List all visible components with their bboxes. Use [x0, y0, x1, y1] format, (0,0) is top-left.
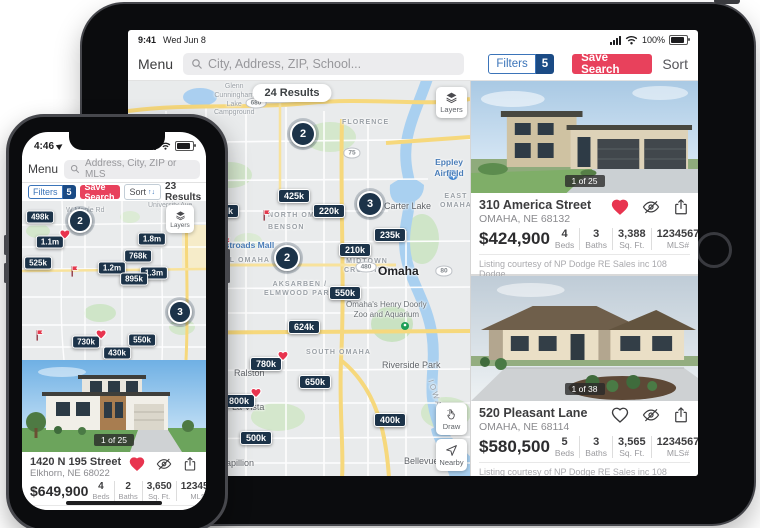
tablet-status-bar: 9:41 Wed Jun 8 100%: [128, 30, 698, 48]
map-price-pin[interactable]: 220k: [313, 204, 345, 218]
map-label: BENSON: [268, 224, 305, 233]
sort-arrows-icon: ↑↓: [148, 189, 155, 196]
favorite-heart-icon[interactable]: [610, 406, 630, 424]
filters-button[interactable]: Filters 5: [488, 54, 554, 74]
nearby-arrow-icon: [445, 444, 458, 457]
search-field[interactable]: City, Address, ZIP, School...: [183, 53, 464, 75]
hide-listing-icon[interactable]: [642, 406, 660, 424]
map-price-pin[interactable]: 430k: [103, 347, 131, 360]
search-field[interactable]: Address, City, ZIP or MLS: [64, 160, 200, 179]
map-label: Carter Lake: [384, 201, 431, 212]
results-count-pill: 24 Results: [252, 84, 331, 102]
map-label: Riverside Park: [382, 360, 441, 371]
listing-info: 310 America Street OMAHA, NE 68132: [471, 193, 698, 274]
pin-favorite-heart-icon: [95, 329, 107, 341]
search-icon: [191, 58, 203, 70]
map-label: EAST OMAHA: [440, 193, 470, 211]
save-search-button[interactable]: Save Search: [572, 54, 652, 74]
listing-price: $424,900: [479, 229, 550, 249]
pin-favorite-heart-icon: [250, 387, 262, 399]
map-price-pin[interactable]: 650k: [299, 375, 331, 389]
phone-device-frame: 4:46 Menu Address, City, ZIP or MLS: [6, 114, 228, 528]
map-cluster-pin[interactable]: 2: [274, 245, 300, 271]
results-count: 23 Results: [165, 181, 201, 203]
phone-volume-up-button: [4, 235, 7, 255]
map-price-pin[interactable]: 730k: [72, 336, 100, 349]
phone-power-button: [227, 249, 230, 283]
tablet-home-button[interactable]: [696, 232, 732, 268]
save-search-button[interactable]: Save Search: [80, 185, 120, 199]
layers-button[interactable]: Layers: [166, 205, 194, 233]
favorite-heart-icon[interactable]: [610, 198, 630, 216]
map-price-pin[interactable]: 780k: [250, 357, 282, 371]
listing-photo[interactable]: 1 of 25: [471, 81, 698, 193]
location-services-icon: [56, 142, 64, 150]
battery-percent: 100%: [642, 35, 665, 45]
map-label: Omaha: [378, 264, 419, 279]
map-label: SOUTH OMAHA: [306, 349, 371, 358]
search-placeholder: Address, City, ZIP or MLS: [85, 158, 194, 180]
listings-panel: 1 of 25 310 America Street OMAHA, NE 681…: [470, 81, 698, 476]
hide-listing-icon[interactable]: [156, 456, 172, 472]
listing-address: 310 America Street: [479, 198, 591, 212]
map-label: Omaha's Henry Doorly Zoo and Aquarium: [346, 300, 427, 320]
map-price-pin[interactable]: 498k: [26, 211, 54, 224]
map-label: AKSARBEN / ELMWOOD PARK: [264, 281, 336, 299]
map-price-pin[interactable]: 550k: [329, 286, 361, 300]
listing-info: 520 Pleasant Lane OMAHA, NE 68114: [471, 401, 698, 476]
layers-icon: [175, 210, 186, 221]
draw-hand-icon: [445, 408, 458, 421]
map-price-pin[interactable]: 624k: [288, 320, 320, 334]
search-icon: [70, 164, 80, 174]
listing-city: OMAHA, NE 68132: [479, 213, 591, 225]
filters-count-badge: 5: [536, 54, 554, 74]
favorite-heart-icon[interactable]: [128, 456, 146, 472]
phone-notch: [69, 132, 165, 150]
listing-card[interactable]: 1 of 38 520 Pleasant Lane OMAHA, NE 6811…: [471, 276, 698, 476]
map-label: Eppley Airfield: [428, 157, 470, 178]
map-price-pin[interactable]: 895k: [120, 273, 148, 286]
listing-address: 1420 N 195 Street: [30, 456, 121, 468]
map-cluster-pin[interactable]: 2: [290, 121, 316, 147]
menu-button[interactable]: Menu: [28, 162, 58, 176]
map-cluster-pin[interactable]: 3: [168, 300, 192, 324]
listing-city: OMAHA, NE 68114: [479, 421, 587, 433]
nearby-button[interactable]: Nearby: [436, 439, 467, 471]
status-time: 4:46: [34, 141, 54, 152]
listing-price: $649,900: [30, 483, 88, 499]
map-price-pin[interactable]: 1.8m: [138, 233, 166, 246]
pin-favorite-heart-icon: [277, 350, 289, 362]
map-price-pin[interactable]: 400k: [374, 413, 406, 427]
listing-address: 520 Pleasant Lane: [479, 406, 587, 420]
layers-icon: [445, 91, 458, 104]
status-time: 9:41: [138, 35, 156, 45]
route-shield: 480: [356, 262, 377, 273]
map-flag-marker[interactable]: [260, 208, 274, 222]
listing-stats: 5Beds 3Baths 3,565Sq. Ft. 1234567MLS#: [550, 436, 698, 458]
phone-toolbar: Menu Address, City, ZIP or MLS: [22, 156, 206, 183]
listing-card[interactable]: 1 of 25 1420 N 195 Street Elkhorn, NE 68…: [22, 360, 206, 510]
status-date: Wed Jun 8: [163, 35, 206, 45]
map-price-pin[interactable]: 425k: [278, 189, 310, 203]
map-cluster-pin[interactable]: 3: [357, 191, 383, 217]
map-price-pin[interactable]: 500k: [240, 431, 272, 445]
draw-button[interactable]: Draw: [436, 403, 467, 435]
listing-courtesy: Listing courtesy of NP Dodge RE Sales: [30, 505, 198, 510]
map-flag-marker[interactable]: [68, 264, 82, 278]
photo-counter: 1 of 38: [565, 383, 605, 395]
share-icon[interactable]: [672, 406, 690, 424]
filters-count-badge: 5: [63, 185, 76, 199]
map-price-pin[interactable]: 1.1m: [36, 236, 64, 249]
listing-stats: 4Beds 2Baths 3,650Sq. Ft. 1234567MLS#: [88, 481, 206, 501]
route-shield: 80: [435, 266, 452, 277]
photo-counter: 1 of 25: [565, 175, 605, 187]
search-placeholder: City, Address, ZIP, School...: [208, 57, 361, 71]
hide-listing-icon[interactable]: [642, 198, 660, 216]
home-indicator[interactable]: [66, 501, 162, 505]
share-icon[interactable]: [182, 456, 198, 472]
map-price-pin[interactable]: 768k: [124, 250, 152, 263]
phone-screen: 4:46 Menu Address, City, ZIP or MLS: [22, 132, 206, 510]
listing-photo[interactable]: 1 of 25: [22, 360, 206, 452]
sort-button[interactable]: Sort↑↓: [124, 184, 162, 200]
map-price-pin[interactable]: 235k: [374, 228, 406, 242]
map-price-pin[interactable]: 210k: [339, 243, 371, 257]
listing-stats: 4Beds 3Baths 3,388Sq. Ft. 1234567MLS#: [550, 228, 698, 250]
cellular-signal-icon: [610, 36, 621, 45]
pin-favorite-heart-icon: [59, 229, 71, 241]
screenshot-canvas: 9:41 Wed Jun 8 100% Menu City, Address, …: [0, 0, 760, 528]
listing-photo[interactable]: 1 of 38: [471, 276, 698, 401]
battery-icon: [669, 35, 688, 45]
tablet-power-button: [714, 0, 740, 4]
phone-volume-down-button: [4, 263, 7, 283]
map-cluster-pin[interactable]: 2: [68, 209, 92, 233]
battery-icon: [175, 141, 194, 151]
map-price-pin[interactable]: 550k: [128, 334, 156, 347]
menu-button[interactable]: Menu: [138, 56, 173, 72]
phone-map[interactable]: Layers W Maple RdUniversity Ave498k1.1m5…: [22, 201, 206, 360]
listing-city: Elkhorn, NE 68022: [30, 468, 121, 479]
listing-card[interactable]: 1 of 25 310 America Street OMAHA, NE 681…: [471, 81, 698, 274]
map-price-pin[interactable]: 525k: [24, 257, 52, 270]
sort-button[interactable]: Sort: [662, 56, 688, 72]
phone-filter-row: Filters 5 Save Search Sort↑↓ 23 Results: [22, 183, 206, 201]
listing-courtesy: Listing courtesy of NP Dodge RE Sales in…: [479, 462, 690, 476]
map-flag-marker[interactable]: [33, 328, 47, 342]
listing-price: $580,500: [479, 437, 550, 457]
share-icon[interactable]: [672, 198, 690, 216]
filters-button[interactable]: Filters 5: [28, 185, 76, 199]
map-label: FLORENCE: [342, 119, 389, 128]
map-label: Bellevue: [404, 456, 439, 467]
route-shield: 75: [343, 148, 360, 159]
layers-button[interactable]: Layers: [436, 87, 467, 118]
wifi-icon: [625, 35, 638, 45]
photo-counter: 1 of 25: [94, 434, 134, 446]
tablet-toolbar: Menu City, Address, ZIP, School... Filte…: [128, 48, 698, 81]
